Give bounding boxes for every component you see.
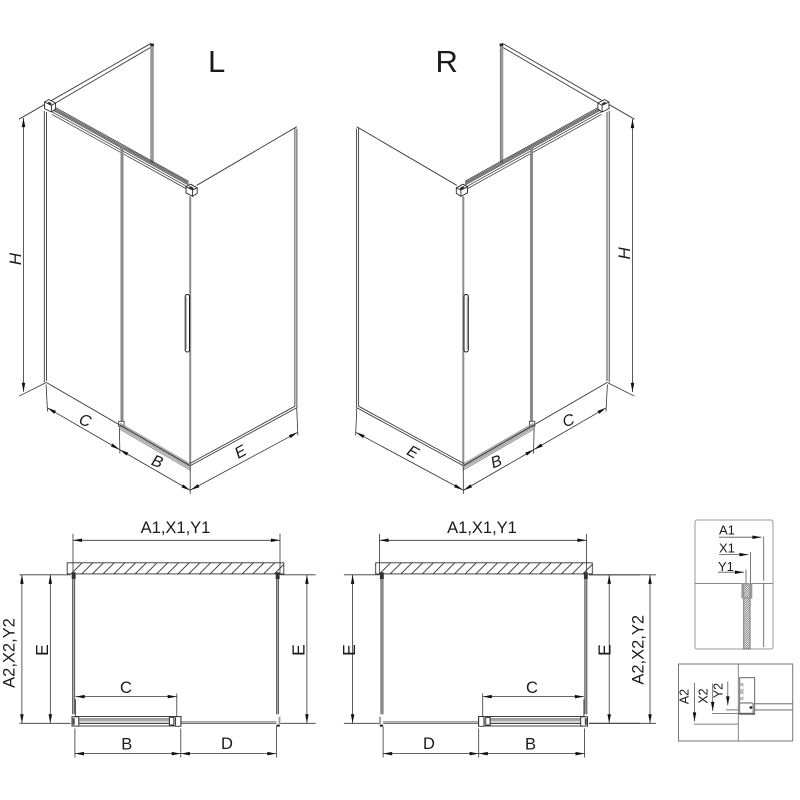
svg-text:R: R <box>436 44 458 79</box>
svg-text:E: E <box>288 644 308 656</box>
svg-text:A1: A1 <box>719 523 735 538</box>
svg-text:X1: X1 <box>719 541 735 556</box>
svg-text:H: H <box>615 246 634 259</box>
svg-text:B: B <box>121 736 132 754</box>
svg-text:A2: A2 <box>678 689 692 704</box>
svg-text:H: H <box>6 252 25 265</box>
svg-text:A1,X1,Y1: A1,X1,Y1 <box>447 519 517 537</box>
svg-text:E: E <box>594 644 614 656</box>
svg-text:Y2: Y2 <box>712 683 726 698</box>
svg-text:D: D <box>423 735 435 753</box>
svg-text:C: C <box>526 679 538 697</box>
svg-text:A2,X2,Y2: A2,X2,Y2 <box>630 615 648 685</box>
svg-text:X2: X2 <box>697 688 711 703</box>
svg-text:A2,X2,Y2: A2,X2,Y2 <box>1 618 19 688</box>
svg-text:Y1: Y1 <box>718 559 734 574</box>
svg-text:A1,X1,Y1: A1,X1,Y1 <box>141 519 211 537</box>
svg-text:E: E <box>32 644 52 656</box>
svg-text:L: L <box>208 44 225 79</box>
svg-text:B: B <box>525 736 536 754</box>
svg-text:D: D <box>221 735 233 753</box>
svg-text:C: C <box>120 679 132 697</box>
svg-text:E: E <box>339 644 359 656</box>
